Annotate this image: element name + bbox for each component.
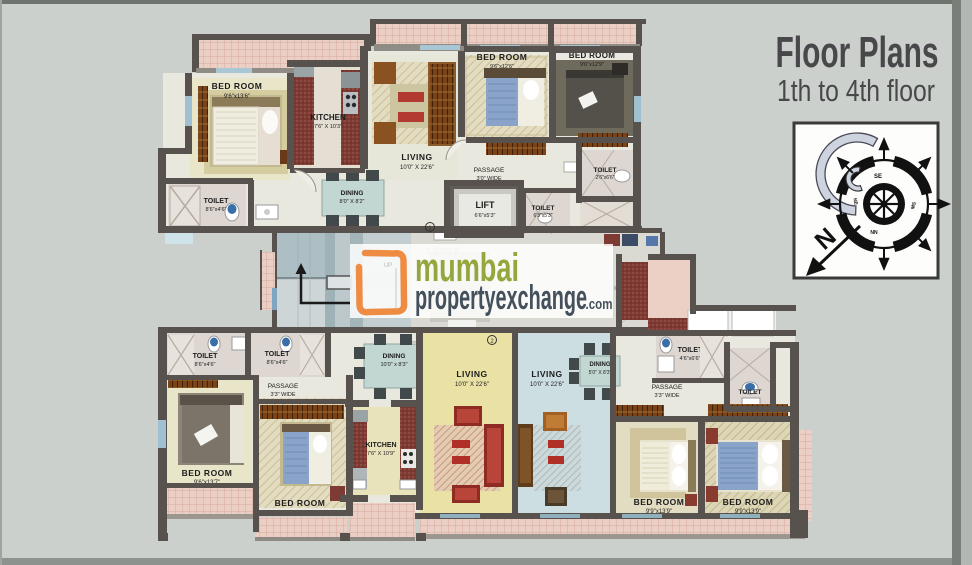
svg-text:7'6" X 10'3": 7'6" X 10'3" <box>314 124 342 130</box>
svg-text:10'0" X 22'6": 10'0" X 22'6" <box>400 165 434 171</box>
svg-text:3'3" WIDE: 3'3" WIDE <box>654 393 679 399</box>
svg-text:propertyexchange: propertyexchange <box>415 279 587 317</box>
svg-text:BED ROOM: BED ROOM <box>182 468 233 478</box>
svg-text:SE: SE <box>874 174 882 180</box>
svg-text:8'6"x4'6": 8'6"x4'6" <box>195 362 216 368</box>
svg-text:10'0" X 22'6": 10'0" X 22'6" <box>530 382 564 388</box>
svg-text:8'0" X 8'2": 8'0" X 8'2" <box>340 199 365 205</box>
svg-text:PASSAGE: PASSAGE <box>652 384 683 391</box>
svg-text:10'0" x 8'3": 10'0" x 8'3" <box>380 362 407 368</box>
svg-text:9'6"x12'6": 9'6"x12'6" <box>490 64 514 70</box>
svg-text:NN: NN <box>870 230 878 236</box>
svg-text:2'6"x6'6": 2'6"x6'6" <box>595 175 614 181</box>
svg-text:6'3"x5'3": 6'3"x5'3" <box>533 213 552 219</box>
svg-text:Floor Plans: Floor Plans <box>776 28 939 77</box>
svg-text:DINING: DINING <box>341 190 364 197</box>
svg-text:TOILET: TOILET <box>594 167 617 174</box>
svg-text:PASSAGE: PASSAGE <box>474 167 505 174</box>
svg-text:LIVING: LIVING <box>531 369 562 379</box>
svg-text:1th to 4th floor: 1th to 4th floor <box>777 73 935 108</box>
svg-text:TOILET: TOILET <box>193 353 218 360</box>
svg-text:7'6" X 10'9": 7'6" X 10'9" <box>367 451 395 457</box>
svg-text:TOILET: TOILET <box>739 389 762 396</box>
svg-text:TOILET: TOILET <box>204 198 229 205</box>
svg-text:DINING: DINING <box>383 353 406 360</box>
svg-text:4'6"x6'6": 4'6"x6'6" <box>680 356 701 362</box>
svg-text:9'6"x12'9": 9'6"x12'9" <box>580 62 604 68</box>
svg-text:BED ROOM: BED ROOM <box>723 497 774 507</box>
svg-text:TOILET: TOILET <box>265 351 290 358</box>
svg-text:UP: UP <box>384 263 392 269</box>
svg-text:10'0" X 22'6": 10'0" X 22'6" <box>455 382 489 388</box>
svg-text:.com: .com <box>586 296 613 313</box>
svg-text:9'6"x13'6": 9'6"x13'6" <box>224 94 250 100</box>
svg-text:KITCHEN: KITCHEN <box>365 442 396 449</box>
svg-text:3'3" WIDE: 3'3" WIDE <box>270 392 295 398</box>
svg-text:5'0" X 8'3": 5'0" X 8'3" <box>589 370 612 376</box>
svg-text:BED ROOM: BED ROOM <box>212 81 263 91</box>
svg-text:BED ROOM: BED ROOM <box>634 497 685 507</box>
svg-text:BED ROOM: BED ROOM <box>477 52 528 62</box>
svg-text:TOILET: TOILET <box>532 205 555 212</box>
svg-text:LIFT: LIFT <box>476 200 495 210</box>
svg-text:PASSAGE: PASSAGE <box>268 383 299 390</box>
svg-text:BED ROOM: BED ROOM <box>275 498 326 508</box>
svg-text:LIVING: LIVING <box>401 152 432 162</box>
svg-text:8'6"x4'6": 8'6"x4'6" <box>206 207 227 213</box>
svg-text:KITCHEN: KITCHEN <box>310 113 346 122</box>
svg-text:LIVING: LIVING <box>456 369 487 379</box>
svg-text:6'6"x5'3": 6'6"x5'3" <box>475 213 496 219</box>
svg-text:TOILET: TOILET <box>678 347 703 354</box>
svg-text:DINING: DINING <box>590 362 611 368</box>
svg-text:8'6"x4'6": 8'6"x4'6" <box>267 360 288 366</box>
